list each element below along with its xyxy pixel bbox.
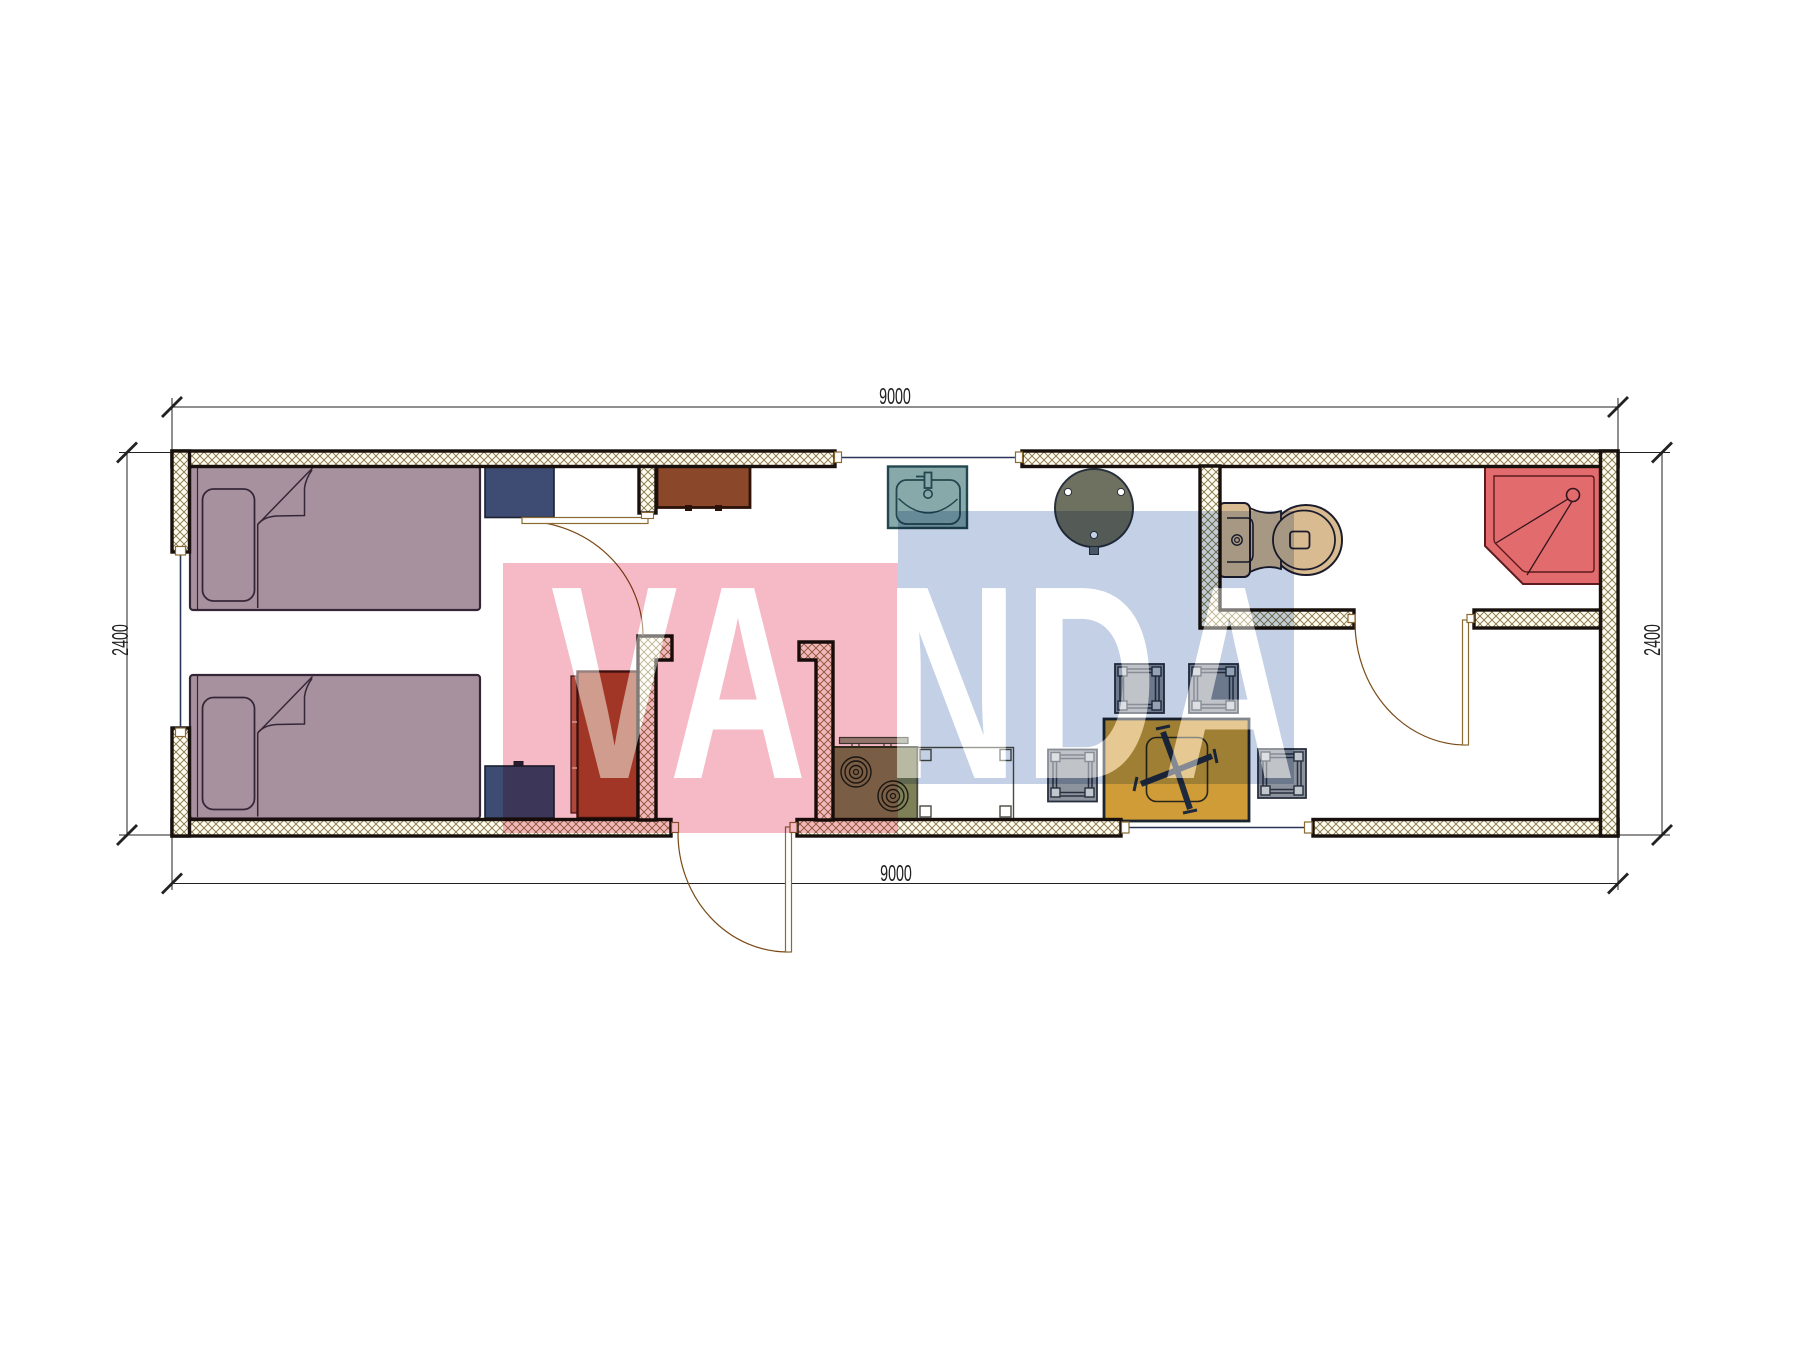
svg-text:2400: 2400 bbox=[1641, 624, 1666, 656]
svg-text:NDA: NDA bbox=[885, 528, 1302, 837]
svg-text:9000: 9000 bbox=[880, 862, 912, 887]
svg-text:9000: 9000 bbox=[879, 385, 911, 410]
svg-text:2400: 2400 bbox=[109, 624, 134, 656]
svg-text:VA: VA bbox=[551, 529, 812, 837]
